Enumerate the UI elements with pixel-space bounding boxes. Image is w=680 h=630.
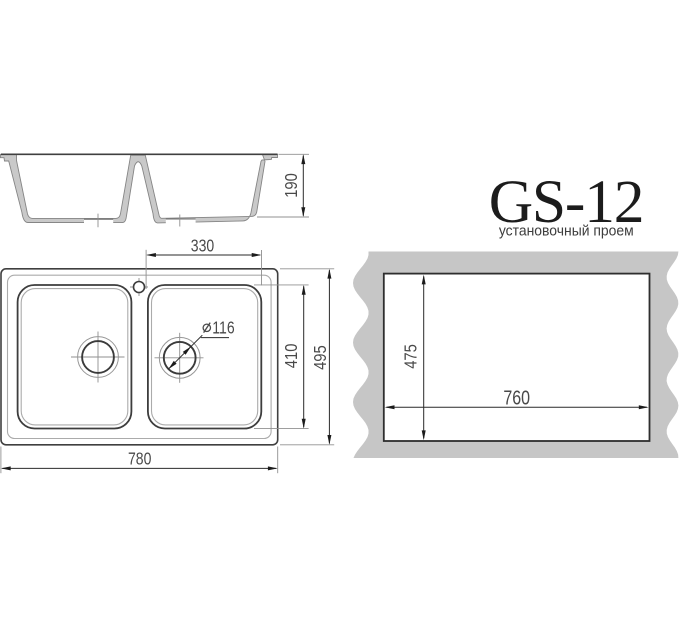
svg-text:780: 780: [128, 449, 151, 469]
svg-text:495: 495: [311, 345, 331, 370]
svg-text:475: 475: [401, 344, 421, 369]
svg-text:330: 330: [191, 236, 214, 256]
svg-text:410: 410: [282, 344, 302, 369]
svg-text:установочный проем: установочный проем: [499, 223, 634, 240]
svg-text:190: 190: [282, 173, 302, 198]
svg-text:760: 760: [503, 386, 530, 409]
svg-text:116: 116: [212, 318, 234, 338]
